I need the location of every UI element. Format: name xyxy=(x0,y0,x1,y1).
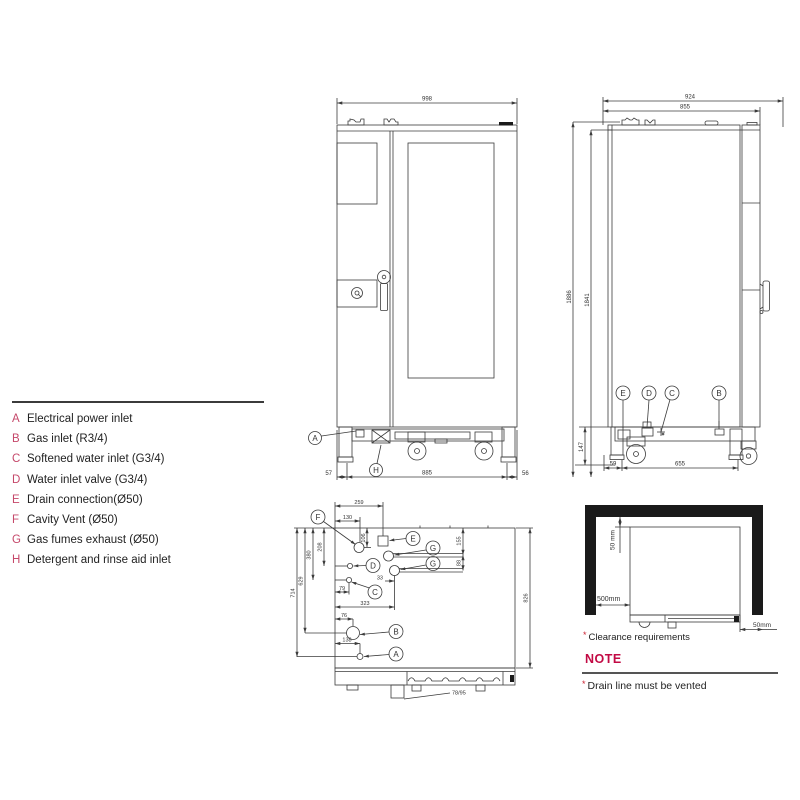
control-panel xyxy=(337,143,377,204)
legend-key: A xyxy=(12,409,27,429)
clearance-caption-text: Clearance requirements xyxy=(589,632,690,643)
door-window xyxy=(408,143,494,378)
callout-a-label: A xyxy=(312,434,318,443)
caster-wheel xyxy=(408,442,426,460)
clearance-caption: *Clearance requirements xyxy=(583,630,690,643)
dim-label-79: 79 xyxy=(339,586,345,592)
top-callouts: F E G G D C B A xyxy=(311,510,440,661)
dim-label-76: 76 xyxy=(341,613,347,619)
callout-g2-label: G xyxy=(430,560,436,569)
dim-label-714: 714 xyxy=(291,588,297,597)
note-title: NOTE xyxy=(585,652,622,666)
legend-label: Water inlet valve (G3/4) xyxy=(27,474,147,486)
dim-label-59: 59 xyxy=(610,462,617,468)
front-callouts: A H xyxy=(309,431,383,477)
top-vent-fitting xyxy=(645,120,655,125)
door-edge xyxy=(742,125,760,427)
top-vent-fitting xyxy=(348,119,364,125)
legend-key: E xyxy=(12,490,27,510)
dim-label-998: 998 xyxy=(422,97,433,103)
dim-label-380: 380 xyxy=(307,550,313,559)
note-text-body: Drain line must be vented xyxy=(588,680,707,692)
callout-e-label: E xyxy=(410,535,415,544)
dim-label-33: 33 xyxy=(377,576,383,582)
dim-label-50mm-right: 50mm xyxy=(753,622,771,629)
gas-fumes-exhaust xyxy=(384,551,394,561)
legend-item-a: AElectrical power inlet xyxy=(12,409,264,429)
dim-label-855: 855 xyxy=(680,105,691,111)
technical-drawing-sheet: 998 xyxy=(0,0,800,800)
dim-label-259: 259 xyxy=(354,500,363,506)
dim-label-155: 155 xyxy=(457,536,463,545)
connection-legend: AElectrical power inlet BGas inlet (R3/4… xyxy=(12,401,264,571)
dim-label-147: 147 xyxy=(579,441,585,452)
dim-label-1841: 1841 xyxy=(585,293,591,307)
top-oven-body xyxy=(335,526,515,669)
callout-b-label: B xyxy=(716,389,721,398)
dim-label-208: 208 xyxy=(318,542,324,551)
legend-item-b: BGas inlet (R3/4) xyxy=(12,429,264,449)
door-handle xyxy=(378,271,391,284)
dim-label-629: 629 xyxy=(299,576,305,585)
softened-water-inlet xyxy=(346,577,351,582)
callout-e-label: E xyxy=(620,389,625,398)
legend-label: Drain connection(Ø50) xyxy=(27,494,143,506)
callout-h-label: H xyxy=(373,466,379,475)
top-view-drawing: 259 130 106 208 380 629 714 xyxy=(290,495,545,710)
legend-item-d: DWater inlet valve (G3/4) xyxy=(12,470,264,490)
top-vent-fitting xyxy=(384,119,398,125)
dim-label-885: 885 xyxy=(422,471,433,477)
side-callouts: E D C B xyxy=(616,386,726,432)
dim-label-924: 924 xyxy=(685,95,696,101)
dim-label-1886: 1886 xyxy=(567,290,573,304)
front-base xyxy=(338,427,516,462)
front-bottom-dimensions: 57 885 56 xyxy=(325,430,529,480)
side-door-handle xyxy=(763,281,770,311)
clearance-oven-box xyxy=(630,527,740,628)
dim-label-106: 106 xyxy=(361,533,367,542)
electrical-power-inlet xyxy=(357,654,363,660)
gas-fumes-exhaust xyxy=(390,566,400,576)
dim-label-500mm: 500mm xyxy=(597,596,621,603)
dim-label-57: 57 xyxy=(325,471,332,477)
legend-item-e: EDrain connection(Ø50) xyxy=(12,490,264,510)
dim-label-323: 323 xyxy=(360,601,369,607)
legend-key: H xyxy=(12,550,27,570)
caster-wheel xyxy=(627,445,646,464)
callout-d-label: D xyxy=(370,562,376,571)
front-view-drawing: 998 xyxy=(300,85,550,495)
top-connections xyxy=(297,536,463,660)
callout-f-label: F xyxy=(316,513,321,522)
legend-label: Cavity Vent (Ø50) xyxy=(27,514,118,526)
legend-item-f: FCavity Vent (Ø50) xyxy=(12,510,264,530)
note-text: *Drain line must be vented xyxy=(582,679,707,692)
knob-panel xyxy=(337,280,377,307)
side-view-drawing: 924 855 1886 1841 xyxy=(565,85,800,495)
legend-label: Softened water inlet (G3/4) xyxy=(27,453,164,465)
legend-key: D xyxy=(12,470,27,490)
legend-key: F xyxy=(12,510,27,530)
dim-label-88: 88 xyxy=(457,560,463,566)
dim-label-78-95: 78/95 xyxy=(452,691,466,697)
legend-label: Detergent and rinse aid inlet xyxy=(27,554,171,566)
legend-key: B xyxy=(12,429,27,449)
water-inlet-valve xyxy=(347,563,352,568)
legend-item-c: CSoftened water inlet (G3/4) xyxy=(12,449,264,469)
cavity-vent xyxy=(354,543,364,553)
legend-item-g: GGas fumes exhaust (Ø50) xyxy=(12,530,264,550)
side-base xyxy=(610,421,757,465)
dim-label-655: 655 xyxy=(675,462,686,468)
dim-label-138: 138 xyxy=(342,638,351,644)
legend-label: Gas fumes exhaust (Ø50) xyxy=(27,534,159,546)
note-divider xyxy=(582,672,778,674)
top-small-dimensions: 33 79 323 76 138 xyxy=(335,576,395,654)
top-vent-fitting xyxy=(622,118,639,125)
caster-wheel xyxy=(475,442,493,460)
drain-connection xyxy=(378,536,388,546)
legend-key: C xyxy=(12,449,27,469)
top-right-dimensions: 155 88 826 xyxy=(457,528,534,668)
dim-label-50mm-top: 50 mm xyxy=(610,530,617,550)
legend-key: G xyxy=(12,530,27,550)
caster-wheel xyxy=(740,448,757,465)
side-bottom-dimensions: 147 59 655 xyxy=(575,427,738,471)
callout-d-label: D xyxy=(646,389,652,398)
serrated-edge xyxy=(408,678,500,681)
dim-label-56: 56 xyxy=(522,471,529,477)
callout-c-label: C xyxy=(372,588,378,597)
side-oven-body xyxy=(608,118,770,427)
legend-item-h: HDetergent and rinse aid inlet xyxy=(12,550,264,570)
legend-label: Gas inlet (R3/4) xyxy=(27,433,108,445)
top-upper-dimensions: 259 130 106 xyxy=(335,500,383,548)
callout-a-label: A xyxy=(393,650,399,659)
dim-label-130: 130 xyxy=(343,515,352,521)
callout-b-label: B xyxy=(393,628,398,637)
dim-label-826: 826 xyxy=(524,593,530,602)
top-front-overhang: 78/95 xyxy=(335,668,515,699)
top-left-dimensions: 208 380 629 714 xyxy=(291,528,336,657)
callout-c-label: C xyxy=(669,389,675,398)
legend-label: Electrical power inlet xyxy=(27,413,132,425)
front-oven-body xyxy=(337,119,517,427)
callout-g1-label: G xyxy=(430,544,436,553)
